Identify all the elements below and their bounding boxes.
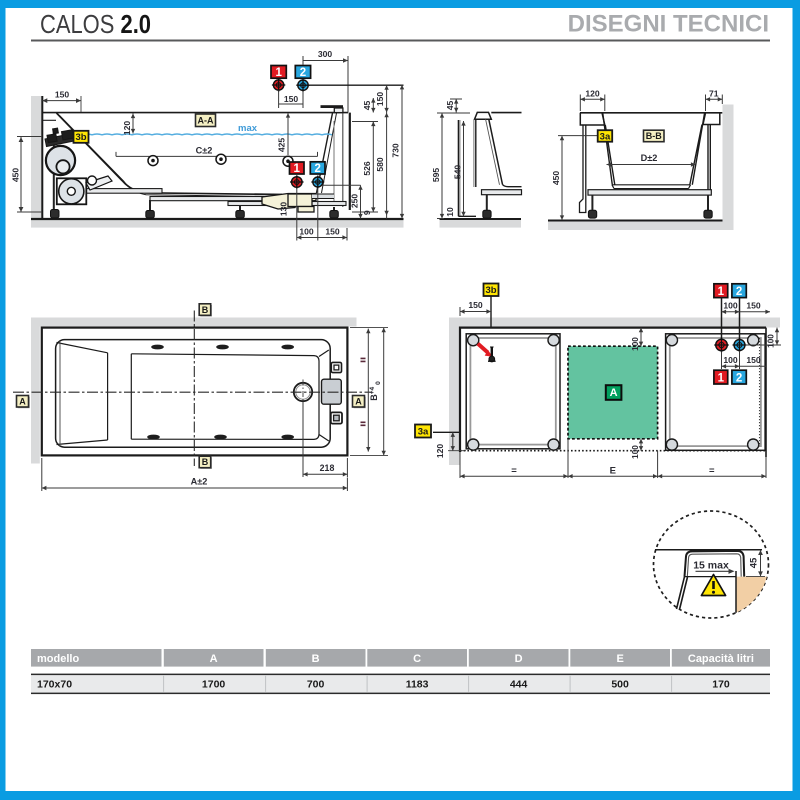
svg-text:A: A	[610, 387, 618, 399]
svg-text:A: A	[210, 653, 218, 665]
svg-text:D: D	[515, 653, 523, 665]
svg-text:1: 1	[275, 67, 282, 79]
svg-text:10: 10	[445, 207, 455, 217]
svg-text:450: 450	[11, 168, 21, 183]
svg-text:150: 150	[468, 300, 483, 310]
svg-text:Capacità litri: Capacità litri	[688, 653, 754, 665]
svg-text:150: 150	[284, 94, 299, 104]
svg-text:1: 1	[294, 163, 301, 175]
svg-text:425: 425	[277, 138, 287, 153]
svg-text:3a: 3a	[418, 426, 429, 437]
svg-text:1183: 1183	[406, 679, 429, 691]
svg-text:A: A	[355, 396, 362, 406]
svg-text:150: 150	[55, 90, 70, 100]
svg-text:1: 1	[718, 286, 725, 298]
svg-text:150: 150	[746, 301, 761, 311]
svg-text:15 max: 15 max	[693, 560, 729, 572]
svg-text:100: 100	[723, 301, 738, 311]
svg-text:9: 9	[362, 210, 372, 215]
svg-text:580: 580	[375, 157, 385, 172]
svg-text:max: max	[238, 123, 258, 134]
svg-text:D±2: D±2	[641, 153, 658, 163]
svg-text:300: 300	[318, 49, 333, 59]
svg-text:100: 100	[723, 355, 738, 365]
svg-text:A-A: A-A	[198, 115, 214, 125]
svg-text:2: 2	[314, 163, 320, 175]
svg-text:100: 100	[631, 337, 640, 351]
svg-text:71: 71	[709, 88, 719, 98]
svg-text:DISEGNI TECNICI: DISEGNI TECNICI	[568, 11, 769, 38]
svg-text:170x70: 170x70	[37, 679, 72, 691]
svg-text:3b: 3b	[485, 285, 496, 296]
svg-text:modello: modello	[37, 653, 79, 665]
svg-text:2: 2	[736, 286, 742, 298]
svg-text:730: 730	[390, 143, 400, 158]
svg-text:120: 120	[585, 88, 600, 98]
svg-text:B: B	[312, 653, 320, 665]
svg-text:100: 100	[631, 445, 640, 459]
svg-text:A±2: A±2	[191, 477, 208, 487]
svg-text:595: 595	[431, 168, 441, 183]
svg-text:3b: 3b	[75, 132, 86, 143]
svg-text:1700: 1700	[202, 679, 226, 691]
svg-text:120: 120	[122, 121, 132, 136]
svg-text:E: E	[616, 653, 623, 665]
svg-text:444: 444	[510, 679, 528, 691]
svg-text:218: 218	[320, 463, 335, 473]
svg-text:=: =	[511, 465, 517, 476]
svg-text:170: 170	[712, 679, 730, 691]
svg-text:526: 526	[362, 161, 372, 176]
svg-text:100: 100	[767, 334, 776, 348]
svg-text:540: 540	[452, 165, 462, 180]
svg-text:=: =	[709, 465, 715, 476]
svg-text:150: 150	[325, 226, 340, 236]
svg-text:45: 45	[749, 557, 760, 568]
svg-text:3a: 3a	[600, 131, 611, 142]
svg-text:120: 120	[435, 444, 445, 459]
svg-text:CALOS 2.0: CALOS 2.0	[40, 9, 151, 39]
svg-text:450: 450	[551, 171, 561, 186]
svg-text:B: B	[202, 305, 209, 315]
svg-text:C: C	[413, 653, 421, 665]
svg-text:2: 2	[736, 372, 742, 384]
svg-text:B: B	[202, 457, 209, 467]
svg-text:500: 500	[611, 679, 629, 691]
svg-text:E: E	[610, 465, 616, 476]
svg-text:45: 45	[362, 101, 372, 111]
svg-text:250: 250	[349, 194, 359, 209]
svg-text:150: 150	[746, 355, 761, 365]
svg-text:130: 130	[279, 202, 289, 217]
svg-text:A: A	[19, 396, 26, 406]
svg-text:B+40: B+40	[369, 381, 382, 401]
svg-text:C±2: C±2	[196, 145, 213, 155]
svg-text:2: 2	[300, 67, 306, 79]
svg-text:45: 45	[445, 101, 455, 111]
svg-text:100: 100	[299, 226, 314, 236]
svg-text:B-B: B-B	[646, 131, 662, 141]
svg-text:150: 150	[375, 92, 385, 107]
svg-text:700: 700	[307, 679, 325, 691]
svg-text:1: 1	[718, 372, 725, 384]
